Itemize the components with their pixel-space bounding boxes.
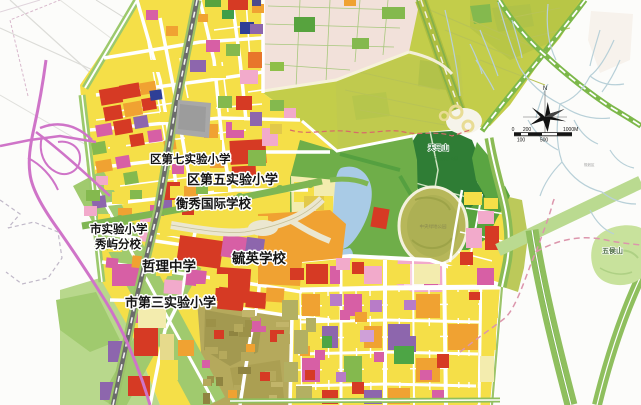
svg-text:1000M: 1000M	[563, 127, 578, 133]
svg-text:中央绿地公园: 中央绿地公园	[420, 223, 447, 230]
svg-text:N: N	[543, 86, 547, 92]
svg-text:五侯山: 五侯山	[602, 246, 623, 255]
svg-text:0: 0	[512, 127, 515, 133]
svg-text:天马山: 天马山	[428, 143, 449, 152]
svg-text:天马山郊野公园: 天马山郊野公园	[430, 155, 458, 161]
svg-text:500: 500	[540, 138, 549, 144]
svg-text:秀屿分校: 秀屿分校	[94, 237, 141, 251]
svg-text:衡秀国际学校: 衡秀国际学校	[176, 196, 252, 211]
svg-text:100: 100	[517, 138, 526, 144]
svg-text:200: 200	[523, 127, 532, 133]
svg-text:市实验小学: 市实验小学	[90, 222, 148, 236]
svg-text:区第七实验小学: 区第七实验小学	[150, 152, 231, 166]
svg-text:哲理中学: 哲理中学	[142, 258, 196, 274]
svg-text:市第三实验小学: 市第三实验小学	[125, 295, 216, 310]
svg-text:规划区: 规划区	[584, 162, 595, 167]
svg-text:区第五实验小学: 区第五实验小学	[187, 172, 278, 187]
svg-text:毓英学校: 毓英学校	[232, 250, 286, 266]
